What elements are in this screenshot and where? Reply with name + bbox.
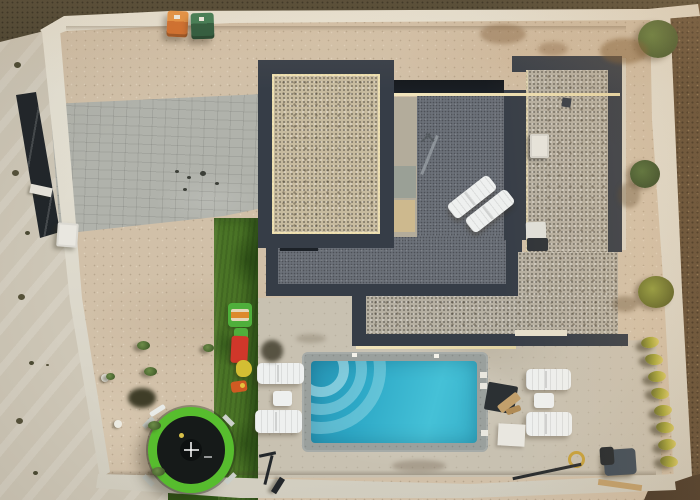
trash-bin-orange-label [174, 15, 180, 19]
roof-ac-unit-2-front [527, 238, 548, 251]
sand-stain-3 [618, 182, 640, 208]
front-roof-gravel [272, 74, 380, 234]
plant-pot-white-2 [114, 420, 122, 428]
terrace-band-bottom-parapet [266, 284, 518, 296]
pool-pump-motor [599, 447, 614, 466]
potted-plant-2 [144, 367, 157, 376]
terrace-sill-sunlit-line [394, 93, 620, 96]
pool-coping-light-1 [352, 353, 357, 357]
side-table-left [273, 391, 292, 406]
right-roof-gravel-lower [518, 252, 618, 296]
deck-stain-2 [296, 334, 326, 343]
sun-lounger-pool-left-2 [255, 410, 302, 433]
dead-plant-deck [261, 340, 283, 362]
trampoline-yellow-clip [179, 433, 184, 438]
right-roof-outer-edge [622, 58, 626, 250]
toy-slide-body [230, 336, 248, 364]
side-table-right [534, 393, 554, 408]
lower-wing-sunlit-edge [356, 346, 516, 349]
deck-tile-white-3 [481, 430, 488, 436]
dark-bush-sand [128, 388, 156, 408]
roof-vent [561, 97, 571, 107]
trampoline-cross-h [184, 449, 199, 451]
lower-wing-bottom-parapet [352, 334, 628, 346]
driveway-debris-specks [175, 170, 179, 173]
sand-stain-4 [612, 296, 638, 312]
sun-lounger-pool-right-2 [526, 412, 572, 436]
trampoline-mark-2 [204, 456, 212, 458]
sand-stain-2 [538, 42, 568, 56]
roof-ac-unit-1 [530, 134, 549, 158]
toy-orange-detail [240, 383, 245, 388]
toy-orange [230, 380, 247, 393]
lower-wing-cap-stone [515, 330, 567, 336]
white-mat [497, 423, 525, 446]
pool-coping-light-2 [434, 354, 439, 358]
sun-lounger-pool-left-1 [257, 363, 304, 384]
sand-stain-1 [480, 24, 526, 44]
roof-hatch-warm [391, 200, 415, 232]
potted-plant-3 [106, 373, 115, 380]
right-roof-right-parapet [608, 56, 622, 252]
trampoline [148, 407, 234, 493]
aerial-photo-villa [0, 0, 700, 500]
wall-top-inner-shadow [66, 26, 626, 31]
toy-picnic-table-stripe [231, 312, 249, 318]
roof-ac-unit-2 [526, 222, 547, 240]
wall-ac-unit [56, 222, 79, 247]
brown-stain-top-right [600, 38, 648, 64]
lower-wing-gravel [366, 296, 618, 334]
potted-plant-4 [148, 421, 161, 430]
outside-left-shrub-dots [14, 62, 21, 68]
pool-water [311, 361, 477, 443]
bush-low-right [638, 276, 674, 308]
deck-tile-white-2 [480, 383, 487, 389]
potted-plant-6 [203, 344, 214, 352]
terrace-right-parapet [504, 90, 526, 240]
potted-plant-5 [152, 467, 165, 476]
toy-yellow [236, 360, 252, 377]
trash-bin-green-label [199, 17, 204, 21]
deck-tile-white-1 [480, 372, 487, 378]
sun-lounger-pool-right-1 [526, 369, 571, 390]
potted-plant-1 [137, 341, 150, 350]
